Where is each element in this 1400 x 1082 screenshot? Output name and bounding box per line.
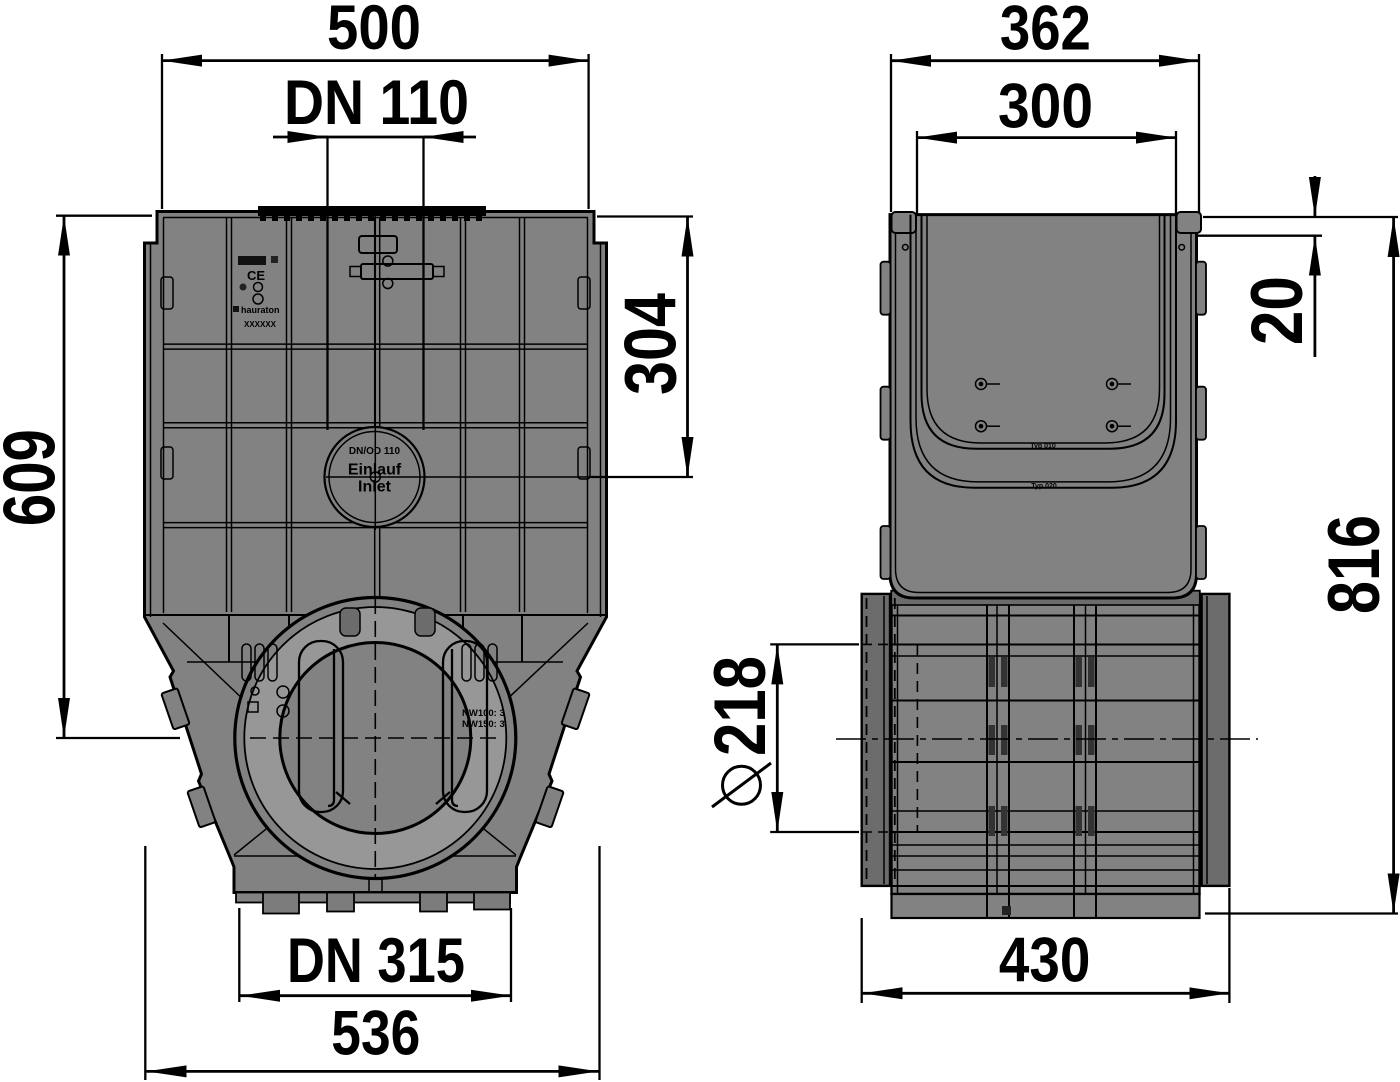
svg-text:XXXXXX: XXXXXX bbox=[244, 320, 277, 329]
svg-text:536: 536 bbox=[331, 998, 420, 1068]
svg-text:CE: CE bbox=[247, 268, 265, 283]
svg-text:Typ 010: Typ 010 bbox=[1030, 443, 1056, 450]
svg-text:300: 300 bbox=[998, 71, 1093, 141]
svg-text:218: 218 bbox=[700, 656, 781, 756]
svg-text:816: 816 bbox=[1314, 515, 1395, 614]
svg-text:609: 609 bbox=[0, 429, 71, 526]
svg-text:430: 430 bbox=[999, 926, 1090, 996]
svg-text:362: 362 bbox=[1000, 0, 1091, 63]
svg-text:NW150: 3: NW150: 3 bbox=[462, 719, 505, 730]
svg-text:20: 20 bbox=[1237, 276, 1318, 345]
svg-text:500: 500 bbox=[327, 0, 421, 63]
svg-text:Typ 020: Typ 020 bbox=[1031, 483, 1057, 490]
svg-text:DN 315: DN 315 bbox=[287, 926, 465, 996]
svg-text:DN 110: DN 110 bbox=[284, 68, 469, 138]
svg-text:hauraton: hauraton bbox=[241, 305, 280, 315]
svg-text:NW100: 3: NW100: 3 bbox=[462, 708, 505, 719]
svg-text:304: 304 bbox=[610, 293, 691, 395]
